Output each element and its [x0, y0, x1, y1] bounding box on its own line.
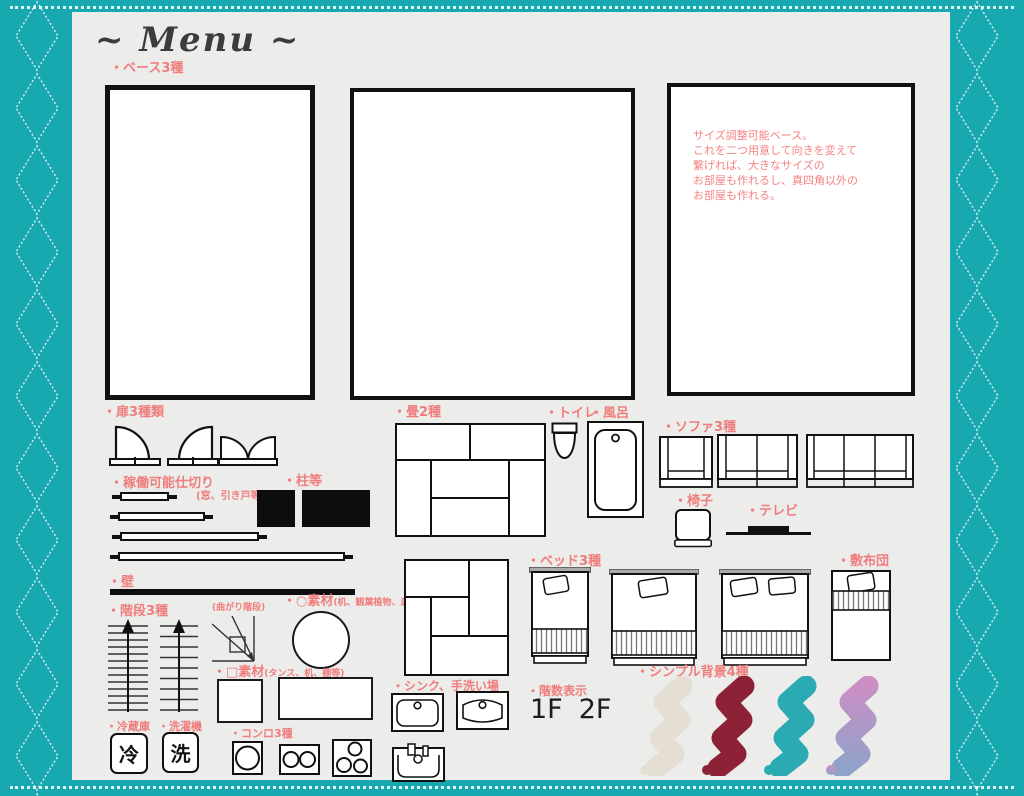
- fridge-glyph: 冷: [119, 739, 139, 768]
- sink-rect-icon: [391, 693, 444, 732]
- stairs-curved-icon: [212, 616, 256, 662]
- label-circle-material: ・○素材(机、観葉植物、皿等): [283, 595, 423, 609]
- square-material-small: [217, 679, 263, 723]
- partition-bar-4: [110, 552, 353, 562]
- sofa-3seat-icon: [806, 434, 914, 488]
- border-dotted-line-top: [10, 6, 1014, 9]
- label-square-material-main: ・□素材: [213, 665, 264, 680]
- stairs-straight-1-icon: [108, 618, 148, 712]
- partition-bar-1: [112, 492, 177, 502]
- fridge-icon: 冷: [110, 733, 148, 774]
- base-rect-1: [105, 85, 315, 400]
- label-tatami: ・畳2種: [393, 406, 441, 420]
- diamond-chain-left-icon: [14, 0, 60, 796]
- partition-bar-3: [112, 532, 267, 542]
- label-stove: ・コンロ3種: [230, 728, 293, 740]
- diamond-chain-right-icon: [954, 0, 1000, 796]
- label-stairs-curved: (曲がり階段): [212, 604, 265, 614]
- label-fridge: ・冷蔵庫: [106, 721, 150, 733]
- background-blob-cream-icon: [638, 676, 696, 776]
- label-partition: ・稼働可能仕切り: [110, 477, 214, 491]
- label-tv: ・テレビ: [746, 505, 798, 519]
- partition-bar-2: [110, 512, 213, 522]
- tv-icon: [726, 526, 811, 536]
- label-partition-sub: (窓、引き戸等): [196, 491, 265, 502]
- label-pillar: ・柱等: [283, 475, 322, 489]
- bathtub-icon: [587, 421, 644, 518]
- background-blob-maroon-icon: [700, 676, 758, 776]
- bed-single-icon: [529, 567, 591, 664]
- stairs-straight-2-icon: [160, 618, 198, 712]
- label-bath: ・風呂: [590, 407, 629, 421]
- page-title: ~ Menu ~: [95, 20, 300, 60]
- washer-glyph: 洗: [171, 738, 191, 767]
- floor-2f: 2F: [579, 694, 612, 725]
- pillar-wide: [302, 490, 370, 527]
- sink-curved-icon: [456, 691, 509, 730]
- border-dotted-line-bottom: [10, 786, 1014, 789]
- floor-indicator-values: 1F 2F: [530, 694, 611, 725]
- label-base: ・ベース3種: [110, 62, 183, 76]
- stove-3burner-icon: [332, 739, 372, 777]
- sofa-1seat-icon: [659, 436, 713, 488]
- chair-icon: [674, 508, 712, 548]
- door-double-icon: [217, 427, 279, 467]
- door-single-left-icon: [108, 419, 164, 467]
- tatami-6mat-icon: [395, 423, 546, 537]
- base-rect-2: [350, 88, 635, 400]
- base-note: サイズ調整可能ベース。 これを二つ用意して向きを変えて 繋げれば、大きなサイズの…: [693, 128, 905, 203]
- toilet-icon: [551, 422, 579, 460]
- stove-2burner-icon: [279, 744, 320, 775]
- square-material-wide: [278, 677, 373, 720]
- stove-1burner-icon: [232, 741, 263, 775]
- door-single-right-icon: [164, 419, 220, 467]
- floor-1f: 1F: [530, 694, 563, 725]
- background-blob-gradient-icon: [824, 676, 882, 776]
- circle-material-shape: [292, 611, 350, 669]
- pillar-square: [257, 490, 295, 527]
- tatami-pinwheel-icon: [404, 559, 509, 676]
- sofa-2seat-icon: [717, 434, 798, 488]
- label-futon: ・敷布団: [837, 555, 889, 569]
- bed-double-2pillow-icon: [719, 569, 811, 666]
- menu-sheet: ~ Menu ~ ・ベース3種 サイズ調整可能ベース。 これを二つ用意して向きを…: [0, 0, 1024, 796]
- sink-faucet-icon: [392, 743, 445, 782]
- label-circle-material-main: ・○素材: [283, 594, 333, 609]
- bed-double-1pillow-icon: [609, 569, 699, 666]
- futon-icon: [831, 570, 891, 661]
- washer-icon: 洗: [162, 732, 199, 773]
- background-blob-teal-icon: [762, 676, 820, 776]
